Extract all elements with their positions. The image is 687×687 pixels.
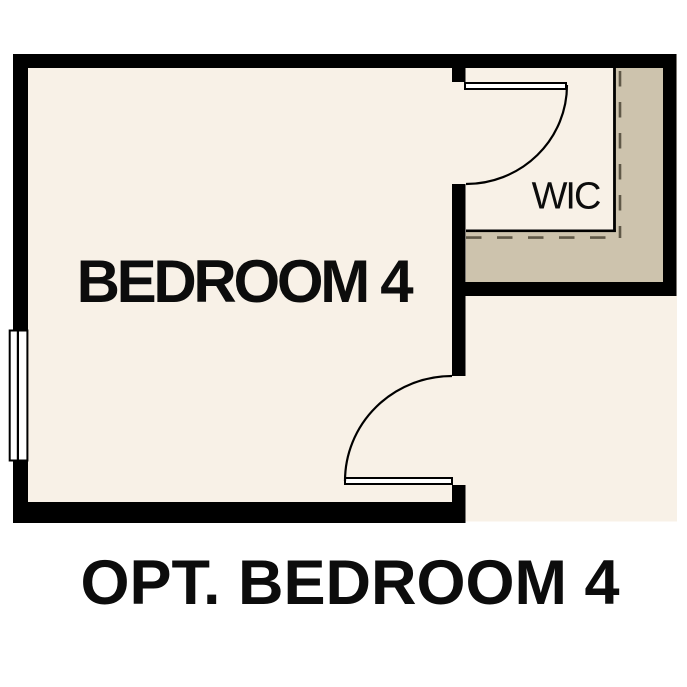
- svg-text:OPT. BEDROOM 4: OPT. BEDROOM 4: [80, 548, 619, 618]
- svg-text:BEDROOM 4: BEDROOM 4: [77, 248, 415, 315]
- svg-text:WIC: WIC: [532, 176, 600, 218]
